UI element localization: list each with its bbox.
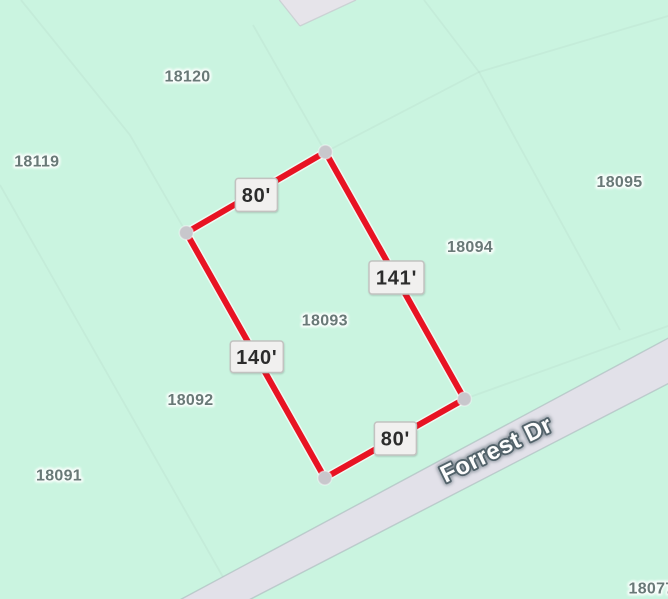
svg-text:18092: 18092	[168, 392, 214, 409]
svg-text:18077: 18077	[629, 580, 668, 597]
svg-text:80': 80'	[242, 185, 271, 207]
svg-text:18093: 18093	[302, 312, 348, 329]
svg-text:18120: 18120	[165, 68, 211, 85]
svg-text:80': 80'	[381, 429, 410, 451]
svg-text:18094: 18094	[447, 239, 493, 256]
svg-text:18095: 18095	[597, 174, 643, 191]
svg-text:140': 140'	[236, 347, 277, 369]
svg-text:18091: 18091	[36, 467, 82, 484]
svg-text:18119: 18119	[14, 153, 59, 170]
svg-text:141': 141'	[376, 268, 417, 290]
